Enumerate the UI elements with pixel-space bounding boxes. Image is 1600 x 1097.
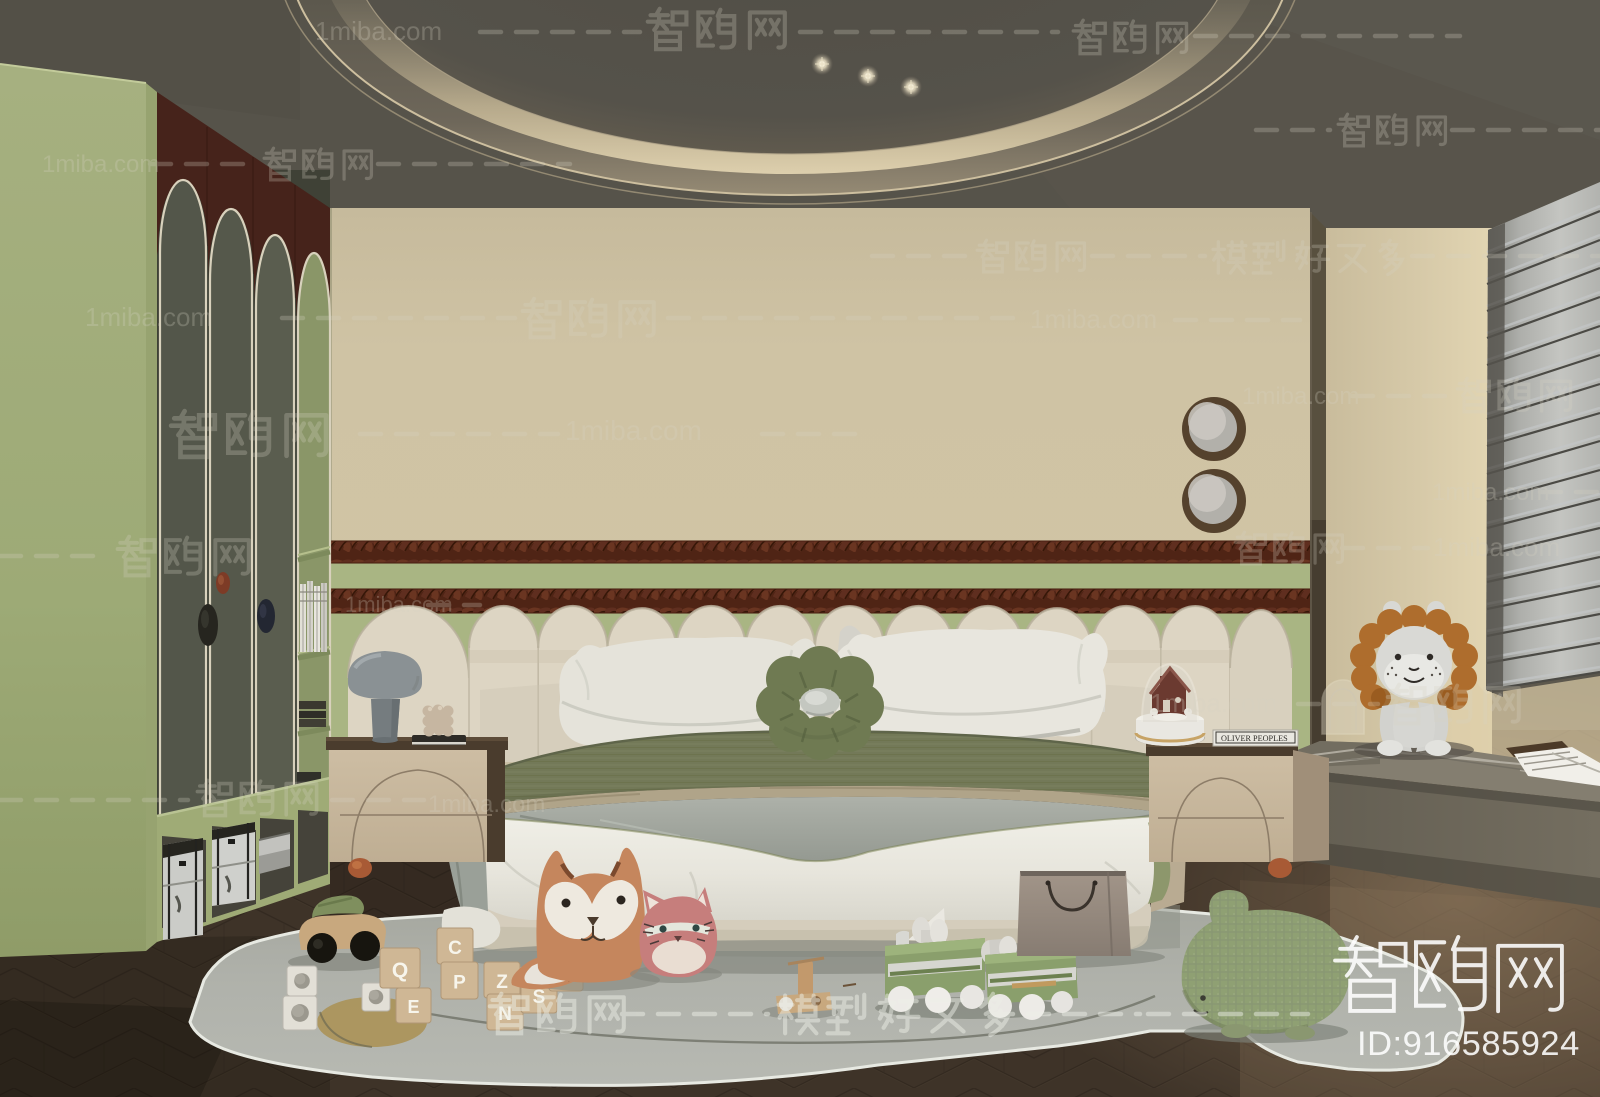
svg-text:Z: Z (496, 972, 508, 993)
svg-text:P: P (453, 973, 466, 994)
svg-text:1miba.com: 1miba.com (428, 791, 545, 818)
svg-text:1miba.com: 1miba.com (1150, 688, 1277, 718)
svg-text:OLIVER PEOPLES: OLIVER PEOPLES (1221, 734, 1288, 743)
svg-text:C: C (448, 938, 462, 959)
svg-text:1miba.com: 1miba.com (85, 302, 212, 332)
svg-text:1miba.com: 1miba.com (1242, 383, 1359, 410)
svg-text:E: E (407, 997, 419, 1017)
svg-text:1miba.com: 1miba.com (1433, 532, 1560, 562)
svg-text:Q: Q (392, 959, 408, 982)
svg-text:1miba.com: 1miba.com (1432, 479, 1549, 506)
svg-text:ID:916585924: ID:916585924 (1357, 1025, 1580, 1063)
svg-text:1miba.com: 1miba.com (42, 151, 159, 178)
svg-text:1miba.com: 1miba.com (1030, 304, 1157, 334)
svg-text:1miba.com: 1miba.com (315, 16, 442, 46)
svg-text:1miba.com: 1miba.com (565, 415, 702, 446)
